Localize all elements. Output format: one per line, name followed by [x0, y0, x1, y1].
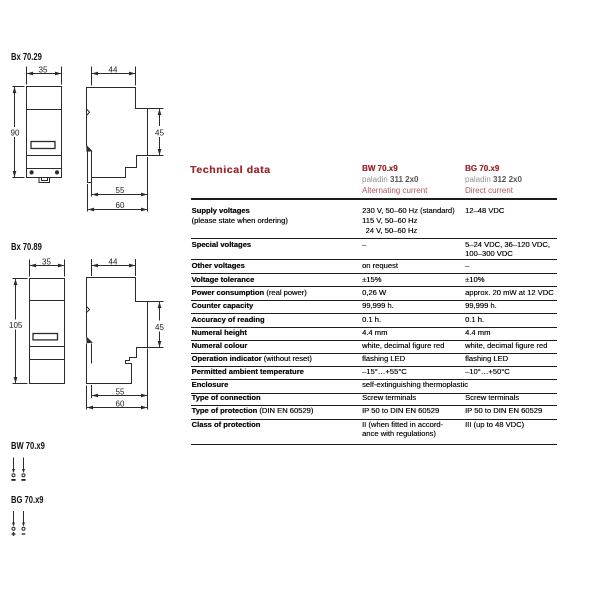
svg-text:45: 45: [155, 323, 164, 332]
svg-text:60: 60: [116, 399, 125, 408]
svg-text:60: 60: [116, 201, 125, 210]
svg-text:45: 45: [155, 128, 164, 137]
svg-text:55: 55: [116, 387, 125, 396]
svg-text:35: 35: [42, 258, 51, 267]
svg-text:105: 105: [9, 321, 23, 330]
svg-text:35: 35: [39, 66, 48, 75]
svg-text:55: 55: [116, 186, 125, 195]
svg-text:44: 44: [109, 66, 118, 75]
svg-text:44: 44: [109, 258, 118, 267]
svg-text:90: 90: [11, 128, 20, 137]
